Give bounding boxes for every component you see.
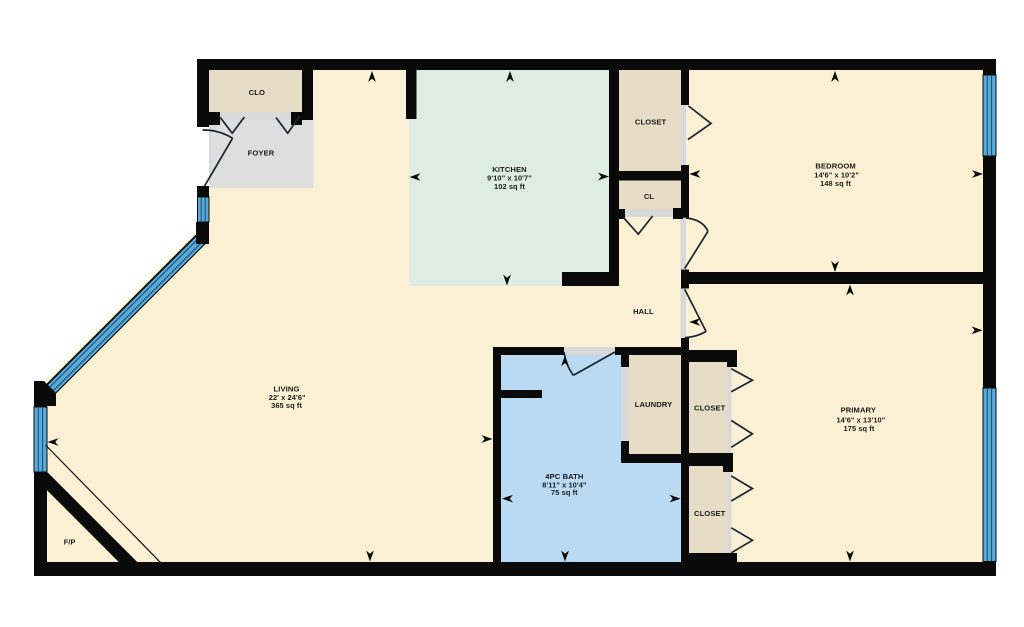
svg-text:CL: CL [644, 192, 655, 201]
svg-text:148 sq ft: 148 sq ft [820, 179, 851, 188]
svg-text:365 sq ft: 365 sq ft [271, 401, 302, 410]
svg-text:PRIMARY: PRIMARY [841, 406, 876, 415]
svg-text:CLOSET: CLOSET [635, 118, 667, 127]
svg-text:102 sq ft: 102 sq ft [494, 182, 525, 191]
svg-text:BEDROOM: BEDROOM [815, 162, 855, 171]
svg-text:HALL: HALL [633, 307, 654, 316]
svg-text:LAUNDRY: LAUNDRY [635, 400, 673, 409]
svg-text:F/P: F/P [64, 538, 76, 547]
svg-text:175 sq ft: 175 sq ft [844, 424, 875, 433]
svg-text:FOYER: FOYER [248, 149, 275, 158]
svg-text:CLOSET: CLOSET [694, 509, 726, 518]
svg-text:CLO: CLO [249, 88, 265, 97]
svg-text:75 sq ft: 75 sq ft [551, 488, 578, 497]
svg-text:CLOSET: CLOSET [694, 404, 726, 413]
